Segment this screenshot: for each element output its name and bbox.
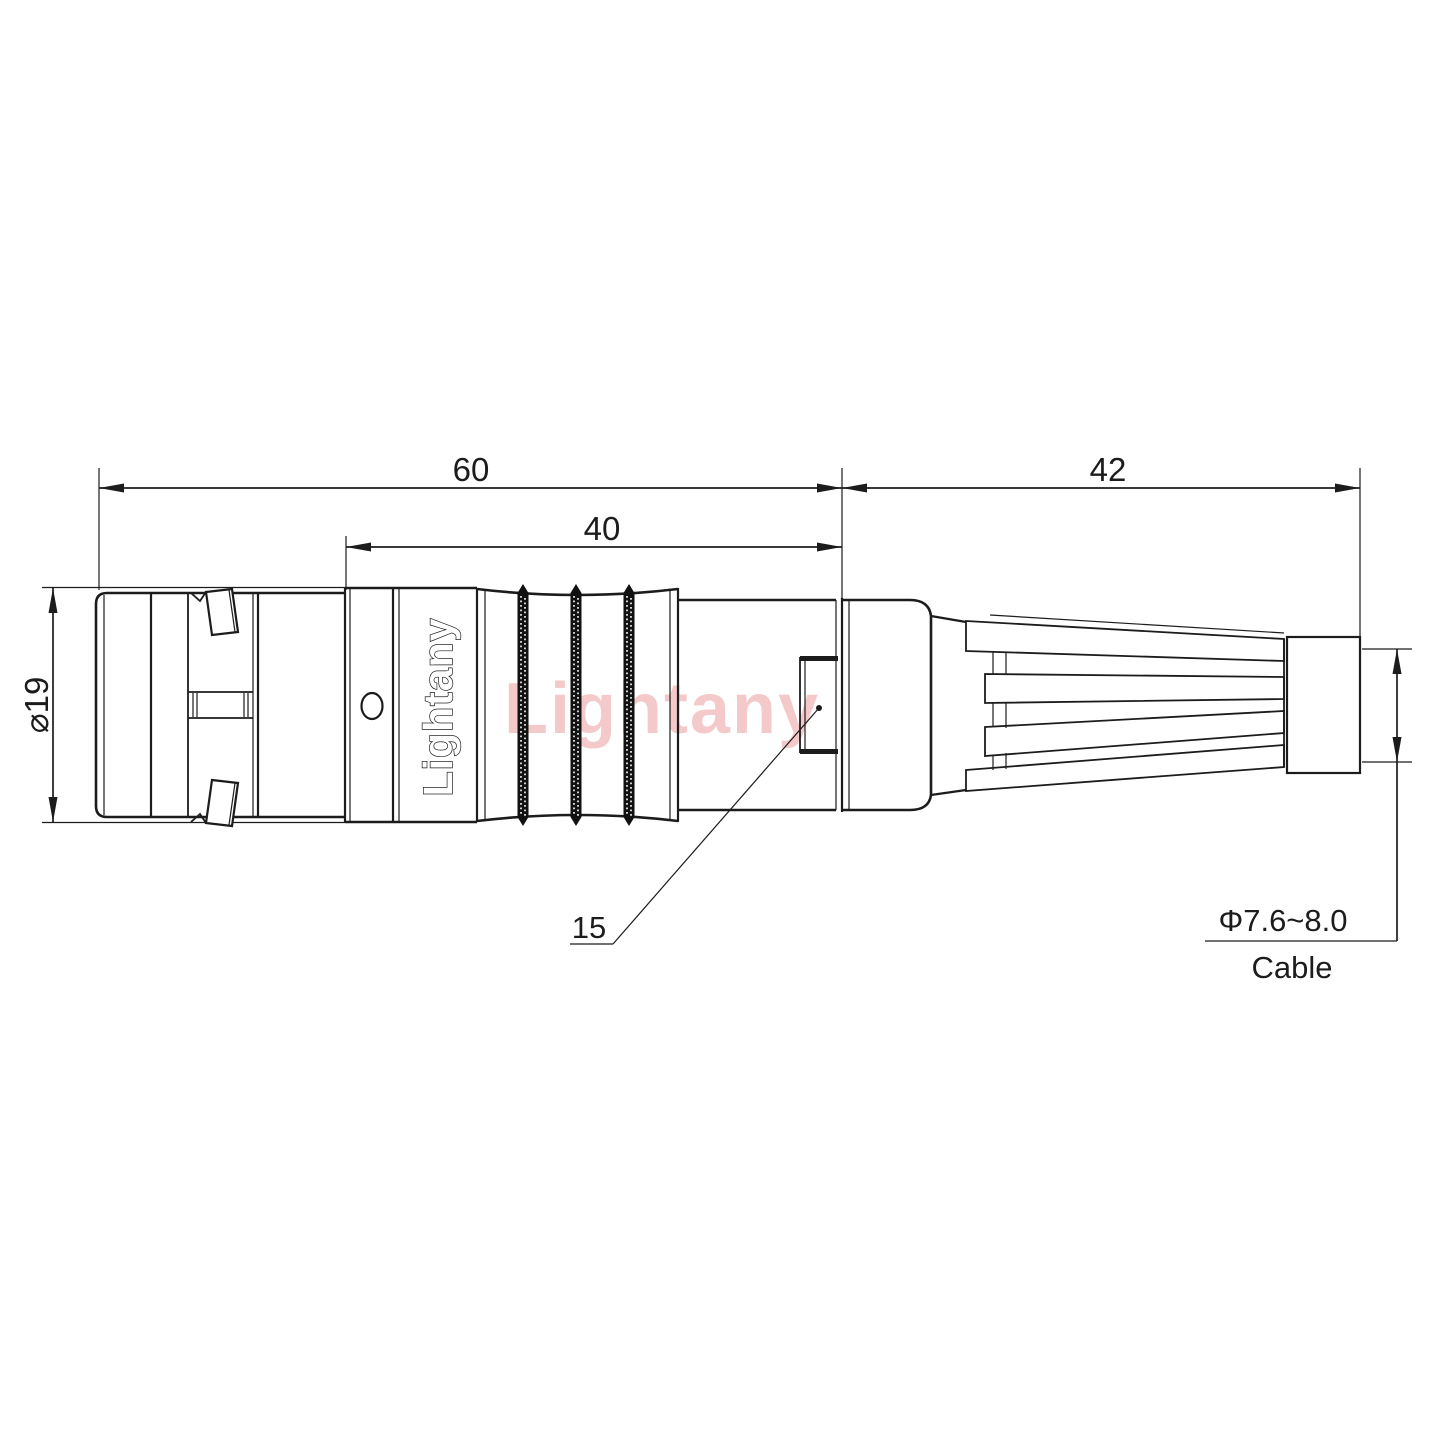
vent-hole [362, 693, 383, 719]
connector-front-shell [96, 589, 345, 826]
knurl-band [518, 584, 529, 826]
dim-42-label: 42 [1090, 451, 1127, 488]
cable-end [1287, 637, 1360, 773]
keyway-window [188, 692, 253, 718]
bottom-key-tab [206, 780, 238, 826]
knurl-band [571, 584, 582, 826]
detail-15-label: 15 [572, 910, 606, 945]
dimension-60: 60 [99, 451, 842, 590]
brand-engraving: Lightany [415, 618, 461, 797]
boot-fin [966, 621, 1284, 661]
cable-label: Cable [1252, 950, 1333, 985]
technical-drawing: Lightany 60 40 42 ⌀19 [0, 0, 1440, 1440]
watermark-text: Lightany [504, 669, 820, 749]
cable-diameter-label: Φ7.6~8.0 [1218, 903, 1347, 938]
bottom-key-notch [191, 814, 206, 823]
dimension-40: 40 [346, 510, 842, 590]
top-key-tab [206, 589, 238, 635]
dim-40-label: 40 [584, 510, 621, 547]
dim-dia19-label: ⌀19 [18, 677, 55, 734]
knurl-band [624, 584, 635, 826]
strain-relief-boot [842, 600, 1284, 810]
dim-60-label: 60 [453, 451, 490, 488]
dimension-dia19: ⌀19 [18, 588, 345, 823]
boot-fin [985, 674, 1284, 703]
dimension-42: 42 [842, 451, 1360, 636]
drawing-canvas: Lightany 60 40 42 ⌀19 [0, 0, 1440, 1440]
ring-section: Lightany [345, 588, 477, 822]
